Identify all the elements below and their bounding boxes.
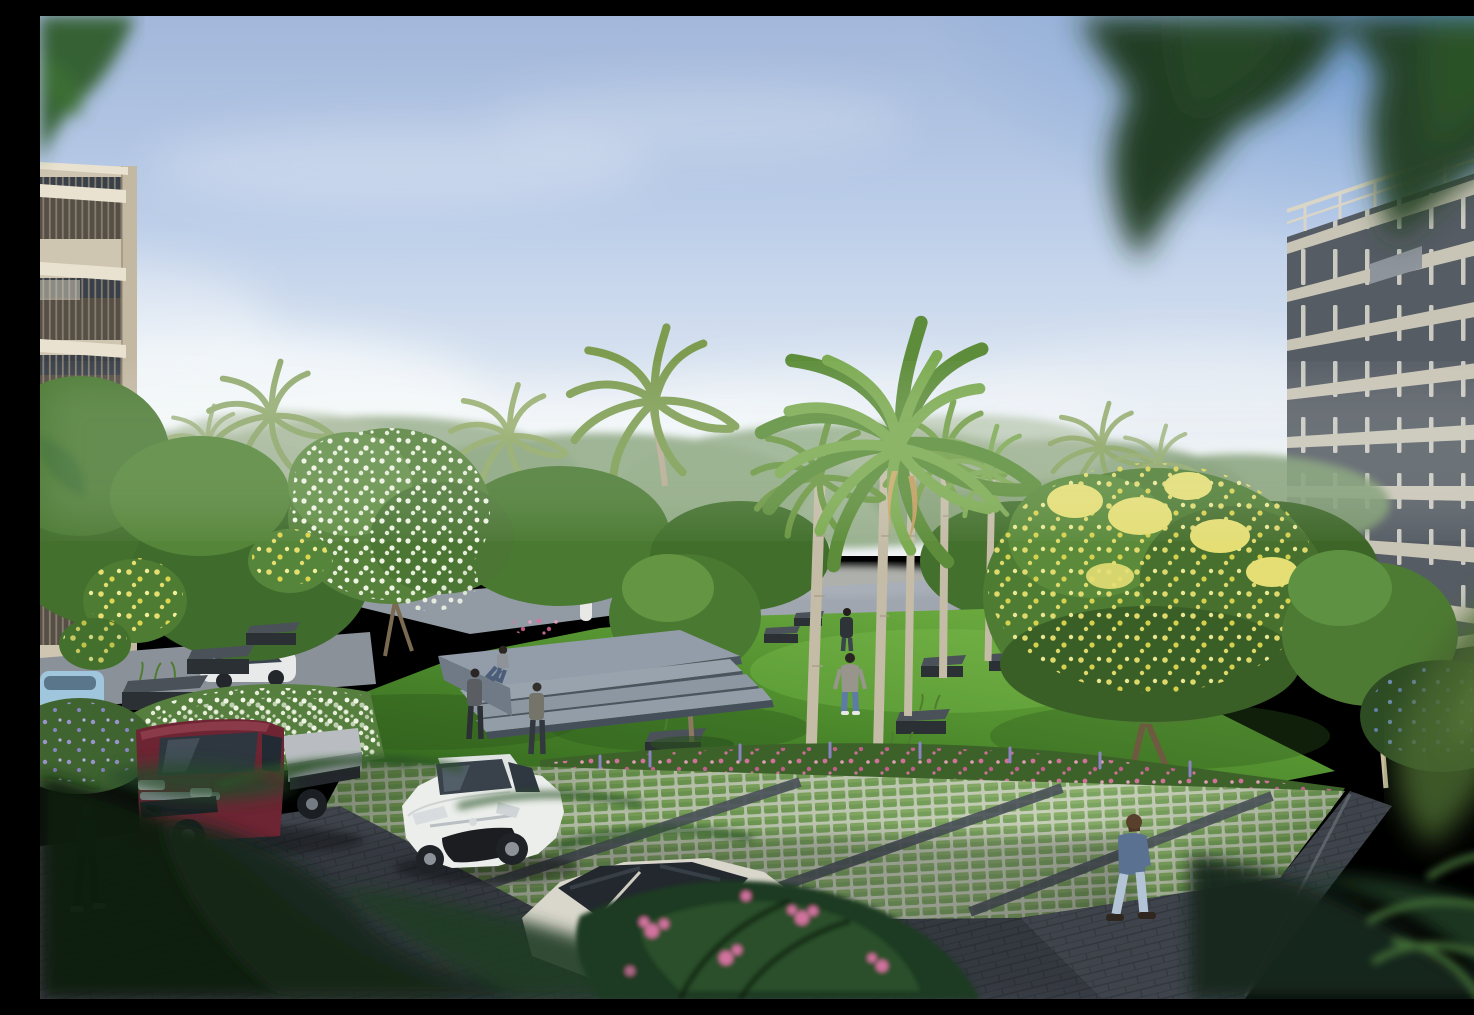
- landscape-render-image: [40, 16, 1474, 999]
- pink-blossom-shrub: [511, 616, 563, 636]
- atmosphere-haze: [40, 376, 1474, 526]
- render-canvas: [40, 16, 1474, 999]
